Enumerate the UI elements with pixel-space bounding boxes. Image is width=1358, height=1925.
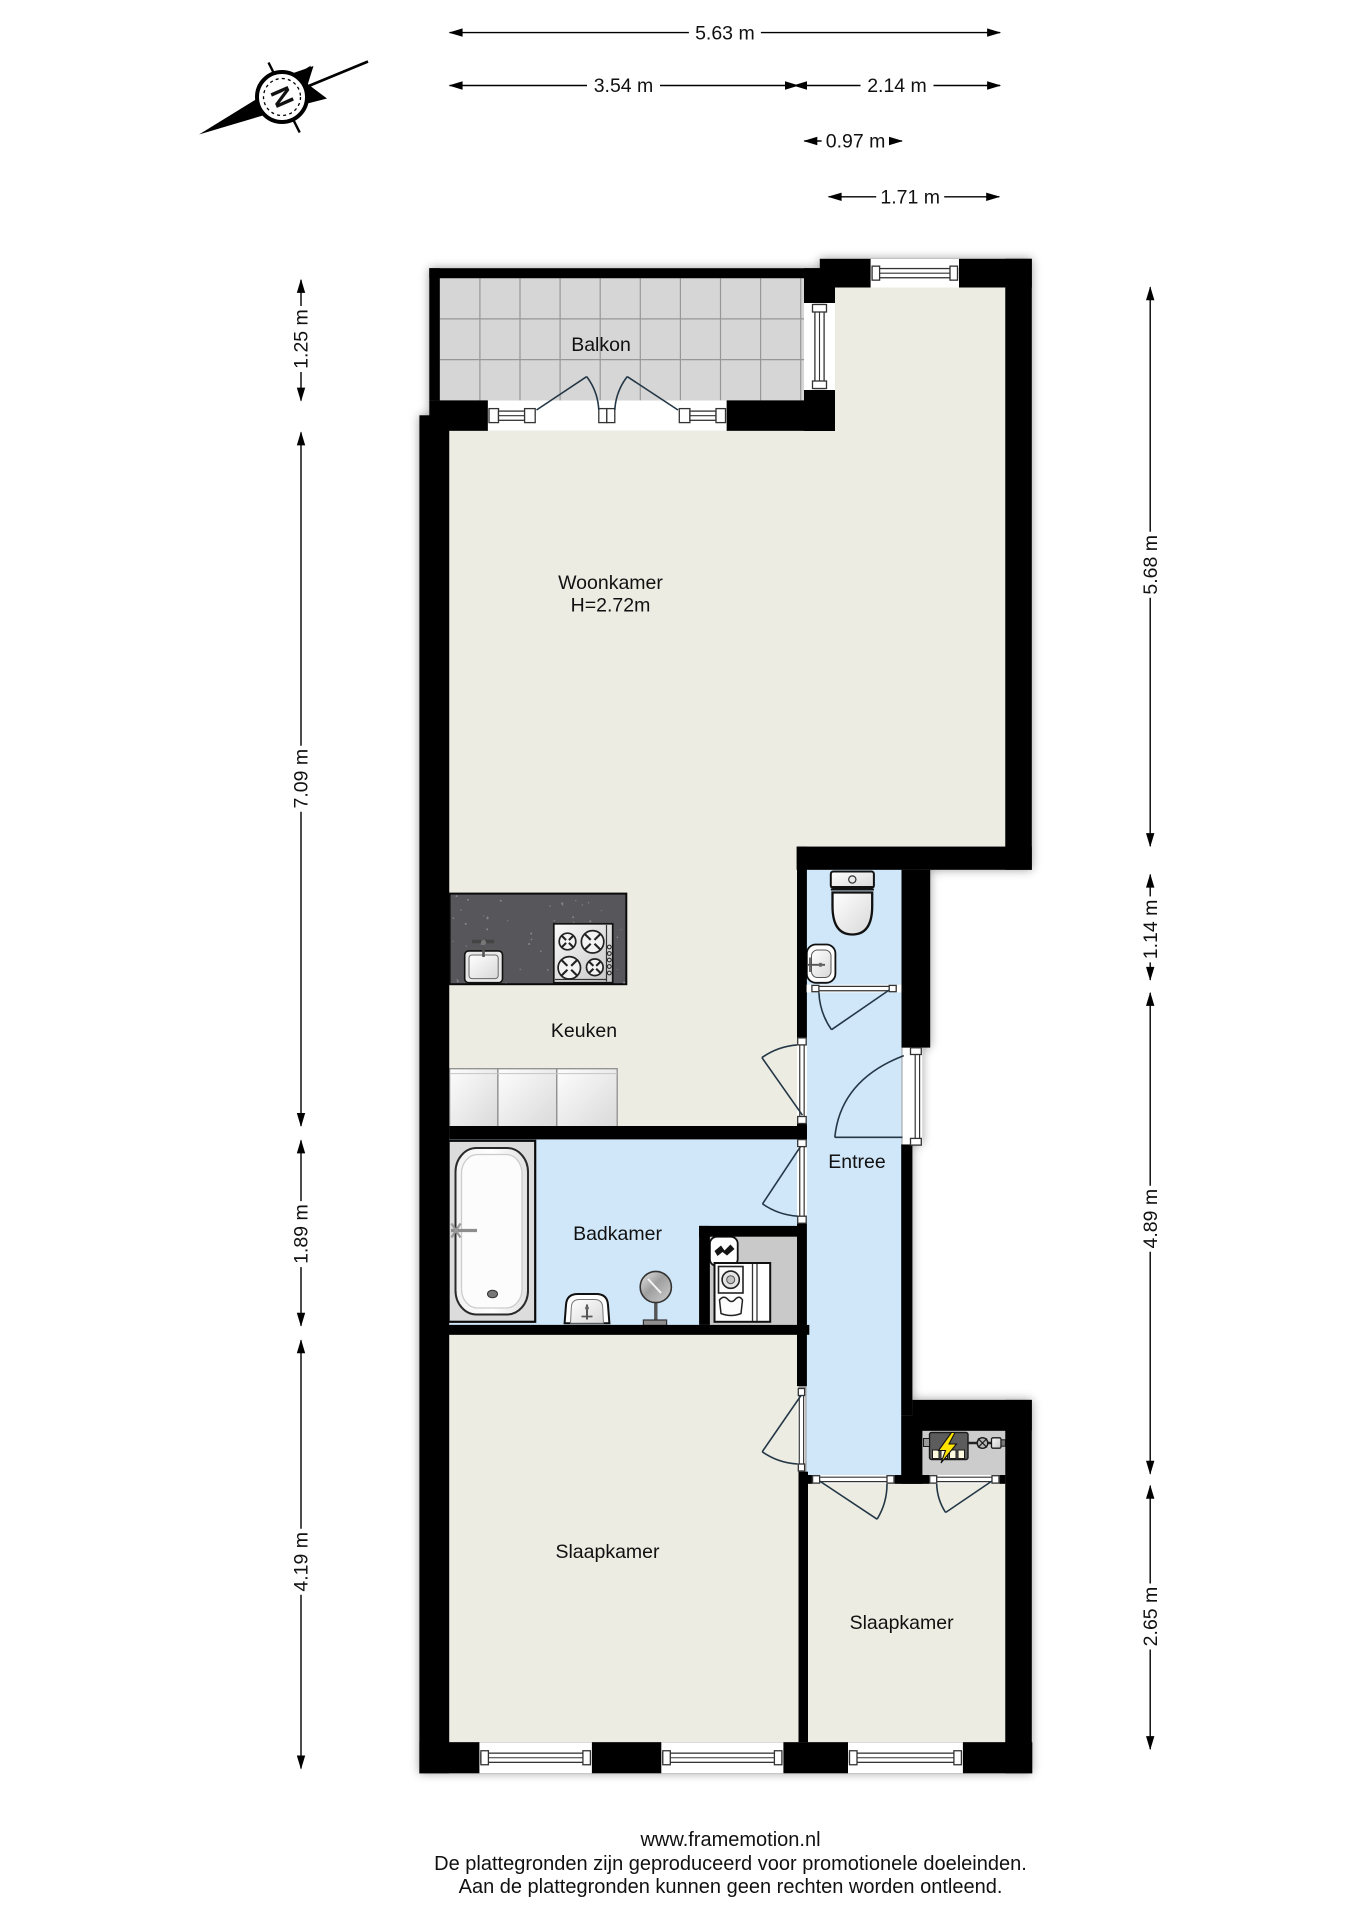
svg-text:H=2.72m: H=2.72m: [571, 595, 651, 617]
svg-text:2.14 m: 2.14 m: [867, 75, 927, 97]
svg-text:Entree: Entree: [828, 1151, 885, 1173]
svg-text:Aan de plattegronden kunnen ge: Aan de plattegronden kunnen geen rechten…: [459, 1876, 1003, 1898]
svg-text:De plattegronden zijn geproduc: De plattegronden zijn geproduceerd voor …: [434, 1853, 1027, 1875]
svg-text:1.25 m: 1.25 m: [291, 309, 313, 369]
svg-text:1.14 m: 1.14 m: [1140, 900, 1162, 960]
svg-text:3.54 m: 3.54 m: [594, 75, 654, 97]
svg-text:5.68 m: 5.68 m: [1140, 535, 1162, 595]
svg-text:1.71 m: 1.71 m: [880, 187, 940, 209]
svg-text:7.09 m: 7.09 m: [291, 749, 313, 809]
svg-text:www.framemotion.nl: www.framemotion.nl: [639, 1829, 820, 1851]
svg-text:Woonkamer: Woonkamer: [558, 572, 663, 594]
svg-text:Slaapkamer: Slaapkamer: [850, 1612, 955, 1634]
svg-text:Badkamer: Badkamer: [573, 1223, 662, 1245]
svg-text:Balkon: Balkon: [571, 334, 631, 356]
svg-text:Slaapkamer: Slaapkamer: [555, 1541, 660, 1563]
svg-text:4.89 m: 4.89 m: [1140, 1189, 1162, 1249]
svg-text:5.63 m: 5.63 m: [695, 22, 755, 44]
svg-text:1.89 m: 1.89 m: [291, 1204, 313, 1264]
svg-text:2.65 m: 2.65 m: [1140, 1587, 1162, 1647]
svg-text:0.97 m: 0.97 m: [826, 131, 886, 153]
svg-text:Keuken: Keuken: [551, 1020, 617, 1042]
svg-text:4.19 m: 4.19 m: [291, 1532, 313, 1592]
